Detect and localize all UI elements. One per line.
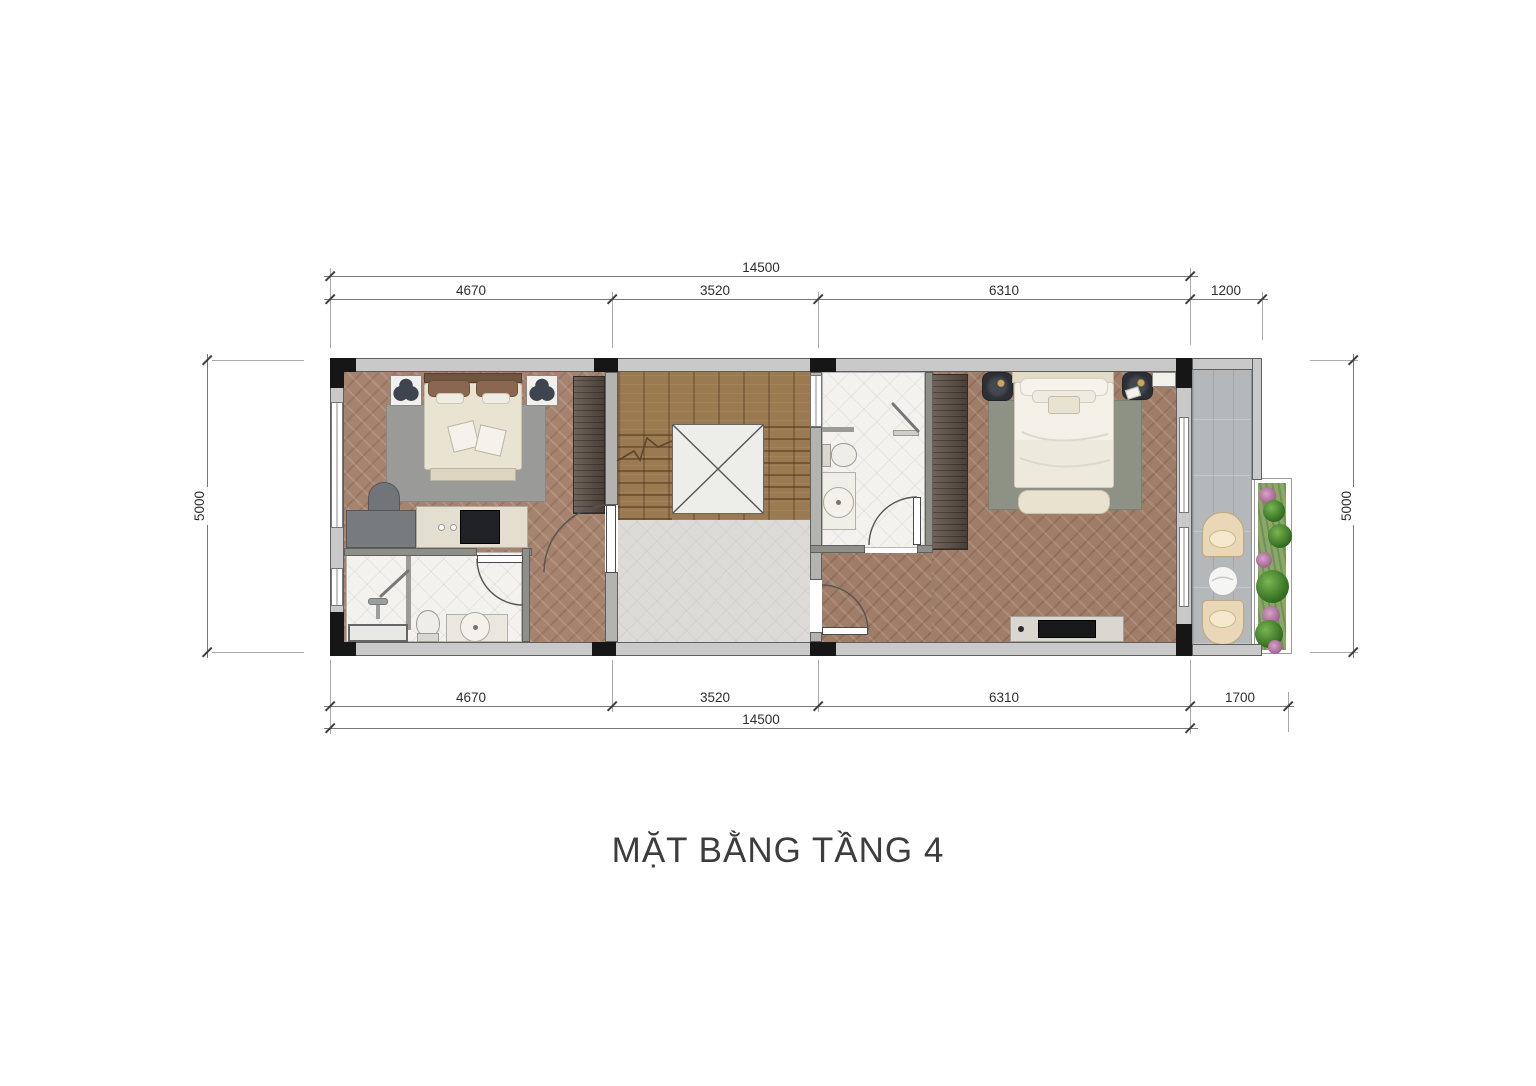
stair-landing-floor [618,520,810,642]
balcony-armchair [1202,600,1244,645]
left-bathroom-right-wall [522,548,530,642]
stair-treads-left [618,424,672,520]
column [592,642,616,656]
column [330,642,356,656]
bathroom-bottom-wall [917,545,933,553]
tv-screen [460,510,500,544]
left-nightstand [390,375,422,406]
plant-bush-icon [1256,570,1289,603]
flower-bush-icon [1268,640,1282,654]
console-knob [450,524,457,531]
right-bed-blanket [1015,440,1113,487]
dim-label: 6310 [985,283,1023,299]
plant-pot-icon [393,378,419,403]
sink-faucet-dot [473,625,478,630]
partition-wall-b [810,427,822,580]
column [330,358,344,388]
left-window [331,402,343,528]
page-title: MẶT BẰNG TẦNG 4 [612,831,945,871]
door-leaf [606,505,616,573]
column [810,642,836,656]
left-bathroom-top-wall [344,548,477,556]
flower-bush-icon [1256,552,1272,568]
bathroom-stub-wall [822,427,854,432]
balcony-glass-door [1179,527,1189,607]
column [1176,358,1192,388]
floor-plan-canvas: 14500 4670 3520 6310 1200 4670 3520 6310… [0,0,1536,1086]
desk [346,510,416,548]
dim-label: 4670 [452,283,490,299]
dim-label: 1200 [1207,283,1245,299]
bathroom-window [810,375,822,427]
chair-cushion [1209,530,1236,548]
toilet-icon [831,443,857,467]
dim-label: 6310 [985,690,1023,706]
shower-head-icon [368,598,388,605]
chair-cushion [1209,610,1236,628]
dim-label: 3520 [696,283,734,299]
dim-label: 5000 [192,487,208,525]
cabinet-knob [1018,626,1024,632]
left-bed-pillow-white [482,393,510,404]
left-window [331,568,343,606]
plant-bush-icon [1263,500,1285,522]
dim-label: 5000 [1339,487,1355,525]
column [594,358,618,372]
toilet-tank [822,444,831,467]
door-leaf [822,627,868,635]
right-wardrobe [932,374,968,550]
left-wardrobe [573,376,605,514]
tv-screen [1038,620,1096,638]
left-bed-bench [430,468,516,481]
door-leaf [913,497,921,545]
column [330,612,344,642]
balcony-table [1208,566,1238,596]
right-nightstand [982,372,1013,401]
plant-bush-icon [1268,524,1292,548]
shower-shelf [893,430,919,436]
dim-label: 14500 [738,260,784,276]
bottom-wall [330,642,1192,656]
left-nightstand [526,375,558,406]
right-bed-bench [1018,490,1110,514]
dim-label: 14500 [738,712,784,728]
left-bed-pillow-white [436,393,464,404]
bathroom-right-wall [925,372,933,553]
console-knob [438,524,445,531]
sink-faucet-dot [836,500,841,505]
shower-curb [348,624,408,642]
column [810,358,836,372]
balcony-glass-door [1179,417,1189,513]
dim-label: 4670 [452,690,490,706]
partition-wall-a [605,572,618,642]
wall-shelf [1152,372,1176,387]
shower-head-stem [376,605,380,619]
stairwell-void [672,424,764,514]
partition-wall-b [810,632,822,642]
dim-label: 1700 [1221,690,1259,706]
bed-tray [1048,396,1080,414]
balcony-armchair [1202,512,1244,557]
stair-treads-right [764,416,810,500]
dim-label: 3520 [696,690,734,706]
balcony-bottom-wall [1192,644,1262,656]
door-leaf [477,555,523,563]
balcony-right-wall [1252,358,1262,480]
plant-pot-icon [529,378,555,403]
bathroom-bottom-wall [810,545,865,553]
column [1176,624,1192,656]
toilet-base [417,633,439,642]
top-wall [330,358,1192,372]
partition-wall-a [605,372,618,505]
shower-partition [406,556,411,630]
